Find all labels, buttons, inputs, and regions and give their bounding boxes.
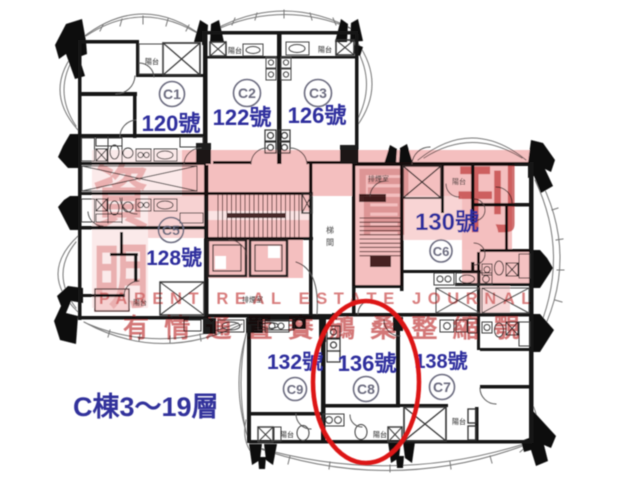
svg-text:陽台: 陽台 <box>373 430 387 439</box>
svg-text:C5: C5 <box>162 222 180 238</box>
svg-text:PARENT REAL ESTATE JOURNAL: PARENT REAL ESTATE JOURNAL <box>99 290 538 308</box>
svg-text:138號: 138號 <box>414 349 467 373</box>
svg-text:陽台: 陽台 <box>133 298 147 307</box>
svg-text:C棟3～19層: C棟3～19層 <box>73 392 219 422</box>
svg-text:C7: C7 <box>433 379 451 395</box>
svg-text:C6: C6 <box>433 244 450 259</box>
svg-text:120號: 120號 <box>142 111 201 136</box>
svg-text:陽台: 陽台 <box>280 430 294 439</box>
svg-text:122號: 122號 <box>213 105 272 130</box>
svg-text:排煙室: 排煙室 <box>242 295 263 304</box>
svg-text:陽台: 陽台 <box>318 45 332 54</box>
svg-text:136號: 136號 <box>338 351 397 376</box>
svg-text:排煙室: 排煙室 <box>368 174 389 183</box>
svg-text:128號: 128號 <box>146 247 202 270</box>
svg-text:C1: C1 <box>163 86 181 102</box>
svg-text:間: 間 <box>326 238 334 247</box>
svg-text:C8: C8 <box>357 381 375 397</box>
svg-text:130號: 130號 <box>415 209 479 236</box>
svg-text:資: 資 <box>93 160 149 237</box>
svg-text:C9: C9 <box>287 382 304 397</box>
svg-text:陽台: 陽台 <box>228 46 242 55</box>
svg-text:C2: C2 <box>238 85 256 101</box>
svg-text:梯: 梯 <box>326 225 334 235</box>
svg-text:陽台: 陽台 <box>145 57 159 66</box>
svg-text:陽台: 陽台 <box>452 417 466 426</box>
svg-text:C3: C3 <box>309 85 327 101</box>
svg-text:陽台: 陽台 <box>452 177 466 186</box>
